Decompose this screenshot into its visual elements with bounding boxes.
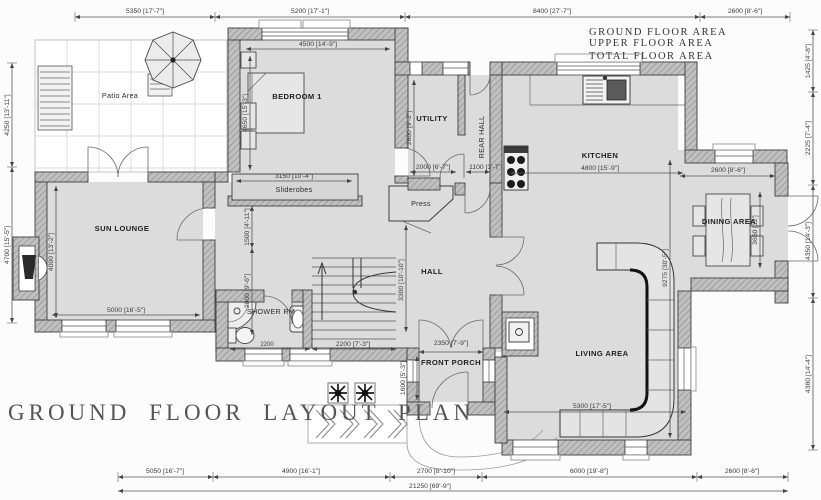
- dim-sun-h: 4000 [13'-2"]: [48, 233, 55, 271]
- dim-right-4: 4380 [14'-4"]: [805, 355, 812, 393]
- hall-label: HALL: [421, 267, 443, 276]
- floor-plan-page: Patio Area: [0, 0, 821, 500]
- sun-lounge-label: SUN LOUNGE: [95, 224, 150, 233]
- dim-right-2: 2225 [7'-4"]: [805, 121, 812, 155]
- area-summary: GROUND FLOOR AREA UPPER FLOOR AREA TOTAL…: [589, 27, 727, 62]
- shower-label: SHOWER RM: [247, 307, 295, 316]
- fireplace-living: [502, 312, 538, 356]
- dim-right-1: 1425 [4'-8"]: [805, 44, 812, 78]
- ground-floor-area-label: GROUND FLOOR AREA: [589, 27, 727, 38]
- utility-label: UTILITY: [416, 114, 447, 123]
- sliderobes-label: Sliderobes: [276, 185, 313, 194]
- drawing-title: GROUND FLOOR LAYOUT PLAN: [8, 400, 474, 425]
- dim-bottom-total: 21250 [69'-9"]: [409, 483, 451, 490]
- dim-bottom-3: 2700 [8'-10"]: [417, 468, 455, 475]
- sun-lounger: [38, 66, 72, 130]
- dim-top-1: 5350 [17'-7"]: [126, 8, 164, 15]
- dim-dining-w: 2600 [8'-6"]: [711, 167, 745, 174]
- dim-utility-h: 2800 [9'-2"]: [406, 111, 413, 145]
- patio-area: Patio Area: [35, 32, 227, 172]
- dim-porch-h: 1600 [5'-3"]: [400, 361, 407, 395]
- dim-living-h: 9275 [30'-5"]: [662, 249, 669, 287]
- stove: [509, 322, 529, 342]
- dim-bottom-5: 2600 [8'-6"]: [725, 468, 759, 475]
- dim-stairs-w: 2200 [7'-3"]: [336, 341, 370, 348]
- parasol-icon: [145, 32, 201, 88]
- floor-plan-drawing: Patio Area: [0, 0, 821, 500]
- upper-floor-area-label: UPPER FLOOR AREA: [589, 38, 713, 49]
- dim-top-3: 8400 [27'-7"]: [533, 8, 571, 15]
- living-label: LIVING AREA: [575, 349, 628, 358]
- dim-rear-hall-w: 1100 [3'-7"]: [469, 164, 503, 171]
- dim-hall-h: 3300 [10'-10"]: [398, 259, 405, 301]
- dim-bedroom-h: 4650 [15'-3"]: [242, 94, 249, 132]
- dim-bottom-4: 6000 [19'-8"]: [570, 468, 608, 475]
- bedroom-label: BEDROOM 1: [272, 92, 322, 101]
- dim-top-2: 5200 [17'-1"]: [291, 8, 329, 15]
- dim-living-w: 5300 [17'-5"]: [573, 403, 611, 410]
- kitchen-label: KITCHEN: [582, 151, 619, 160]
- dim-bottom-1: 5050 [16'-7"]: [146, 468, 184, 475]
- dim-kitchen-w: 4800 [15'-9"]: [581, 165, 619, 172]
- dim-bottom-2: 4900 [16'-1"]: [282, 468, 320, 475]
- dim-sliderobes-w: 3150 [10'-4"]: [275, 173, 313, 180]
- dim-right-3: 4350 [14'-3"]: [805, 222, 812, 260]
- porch-label: FRONT PORCH: [421, 358, 481, 367]
- dim-porch-w: 2350 [7'-9"]: [434, 340, 468, 347]
- rear-hall-label: REAR HALL: [477, 116, 486, 159]
- dim-left-1: 4250 [13'-11"]: [4, 94, 11, 135]
- cooker-hob: [504, 146, 528, 190]
- dim-sun-w: 5000 [16'-5"]: [107, 307, 145, 314]
- dim-shower-h: 2900 [9'-6"]: [244, 274, 251, 308]
- toilet: [228, 328, 254, 344]
- dining-table: [706, 194, 750, 266]
- patio-label: Patio Area: [102, 91, 138, 100]
- dim-dining-h: 3650 [12']: [752, 215, 759, 245]
- press-label: Press: [411, 199, 431, 208]
- dim-left-2: 4700 [15'-5"]: [4, 226, 11, 264]
- dim-bedroom-w: 4500 [14'-9"]: [299, 41, 337, 48]
- dim-top-4: 2600 [8'-6"]: [728, 8, 762, 15]
- dim-shower-w: 2200: [260, 342, 274, 348]
- dining-label: DINING AREA: [702, 217, 756, 226]
- sink-unit: [583, 76, 630, 104]
- total-floor-area-label: TOTAL FLOOR AREA: [589, 51, 714, 62]
- dim-utility-w: 2000 [6'-7"]: [416, 164, 450, 171]
- dim-landing-h: 1500 [4'-11"]: [244, 208, 251, 246]
